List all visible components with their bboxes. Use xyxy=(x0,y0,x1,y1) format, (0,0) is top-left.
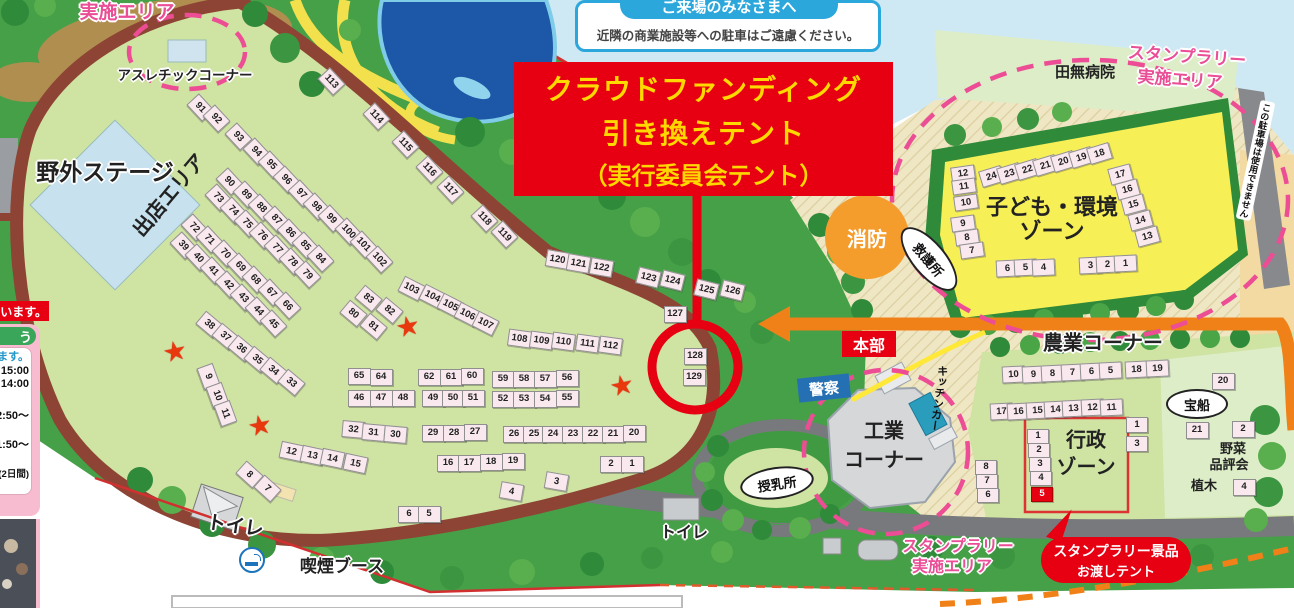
kids-zone-label-2: ゾーン xyxy=(1020,219,1085,242)
gift-tent-label-1: スタンプラリー景品 xyxy=(1053,541,1179,561)
industry-corner-label-2: コーナー xyxy=(844,451,924,472)
stamp-area-label-topright-1: スタンプラリー xyxy=(1127,44,1246,70)
left-panel-row: 14:00 xyxy=(0,378,29,390)
toilet-label-left: トイレ xyxy=(205,513,264,541)
smoking-booth-label: 喫煙ブース xyxy=(300,558,384,576)
industry-corner-label-1: 工業 xyxy=(864,422,904,443)
headquarters-badge: 本部 xyxy=(842,331,896,357)
admin-zone-label-1: 行政 xyxy=(1066,431,1106,452)
visitors-notice-title: ご来場のみなさまへ xyxy=(620,0,838,19)
crowdfunding-banner-line1: クラウドファンディング xyxy=(545,68,862,108)
left-panel-row: 15:00 xyxy=(0,365,29,377)
smoking-icon xyxy=(239,547,265,573)
vegetable-fair-label-2: 品評会 xyxy=(1209,458,1248,472)
left-panel-schedule: ます。15:0014:002:50～1:50～(2日間) xyxy=(0,347,32,495)
left-panel-row: (2日間) xyxy=(0,469,29,481)
stamp-area-label-topleft: 実施エリア xyxy=(79,3,174,23)
visitors-notice-body: 近隣の商業施設等への駐車はご遠慮ください。 xyxy=(578,25,878,44)
agriculture-corner-label: 農業コーナー xyxy=(1043,334,1163,355)
left-panel-row: ます。 xyxy=(0,351,29,363)
gift-tent-bubble: スタンプラリー景品 お渡しテント xyxy=(1041,537,1191,583)
left-panel-strip: います。 xyxy=(0,301,49,321)
stamp-area-label-topright-2: 実施エリア xyxy=(1137,68,1223,92)
nursing-room-badge: 授乳所 xyxy=(738,462,816,504)
label-layer: 実施エリア アスレチックコーナー 野外ステージ 出店エリア 田無病院 スタンプラ… xyxy=(0,0,1294,608)
kids-zone-label-1: 子ども・環境 xyxy=(986,195,1118,218)
fire-station-badge: 消防 xyxy=(825,195,909,279)
gift-tent-label-2: お渡しテント xyxy=(1077,561,1155,580)
outdoor-stage-label: 野外ステージ xyxy=(36,160,174,184)
left-panel-row: 1:50～ xyxy=(0,439,29,451)
gift-tent-pointer xyxy=(1039,502,1071,541)
toilet-label-mid: トイレ xyxy=(660,526,708,543)
left-panel: う ます。15:0014:002:50～1:50～(2日間) xyxy=(0,324,40,516)
athletic-corner-label: アスレチックコーナー xyxy=(118,69,253,83)
left-panel-header: う xyxy=(0,327,36,345)
left-panel-photo xyxy=(0,519,40,608)
treasure-ship-badge: 宝船 xyxy=(1166,389,1228,419)
left-panel-row: 2:50～ xyxy=(0,410,29,422)
parking-note-label: この駐車場は使用できません xyxy=(1236,100,1276,221)
hospital-label: 田無病院 xyxy=(1055,65,1115,81)
vegetable-fair-label-1: 野菜 xyxy=(1220,442,1246,456)
crowdfunding-banner-line3: （実行委員会テント） xyxy=(584,156,824,191)
stamp-area-label-bottom-1: スタンプラリー xyxy=(902,540,1014,557)
planting-label: 植木 xyxy=(1191,479,1217,493)
crowdfunding-banner-line2: 引き換えテント xyxy=(602,112,805,152)
event-map: 9192939495969798991001011029089888786858… xyxy=(0,0,1294,608)
kitchen-car-label: キッチンカー xyxy=(925,364,950,432)
crowdfunding-banner: クラウドファンディング 引き換えテント （実行委員会テント） xyxy=(514,62,893,196)
admin-zone-label-2: ゾーン xyxy=(1057,458,1116,479)
stamp-area-label-bottom-2: 実施エリア xyxy=(912,560,992,577)
police-badge: 警察 xyxy=(797,373,851,402)
visitors-notice: ご来場のみなさまへ 近隣の商業施設等への駐車はご遠慮ください。 xyxy=(575,0,881,52)
